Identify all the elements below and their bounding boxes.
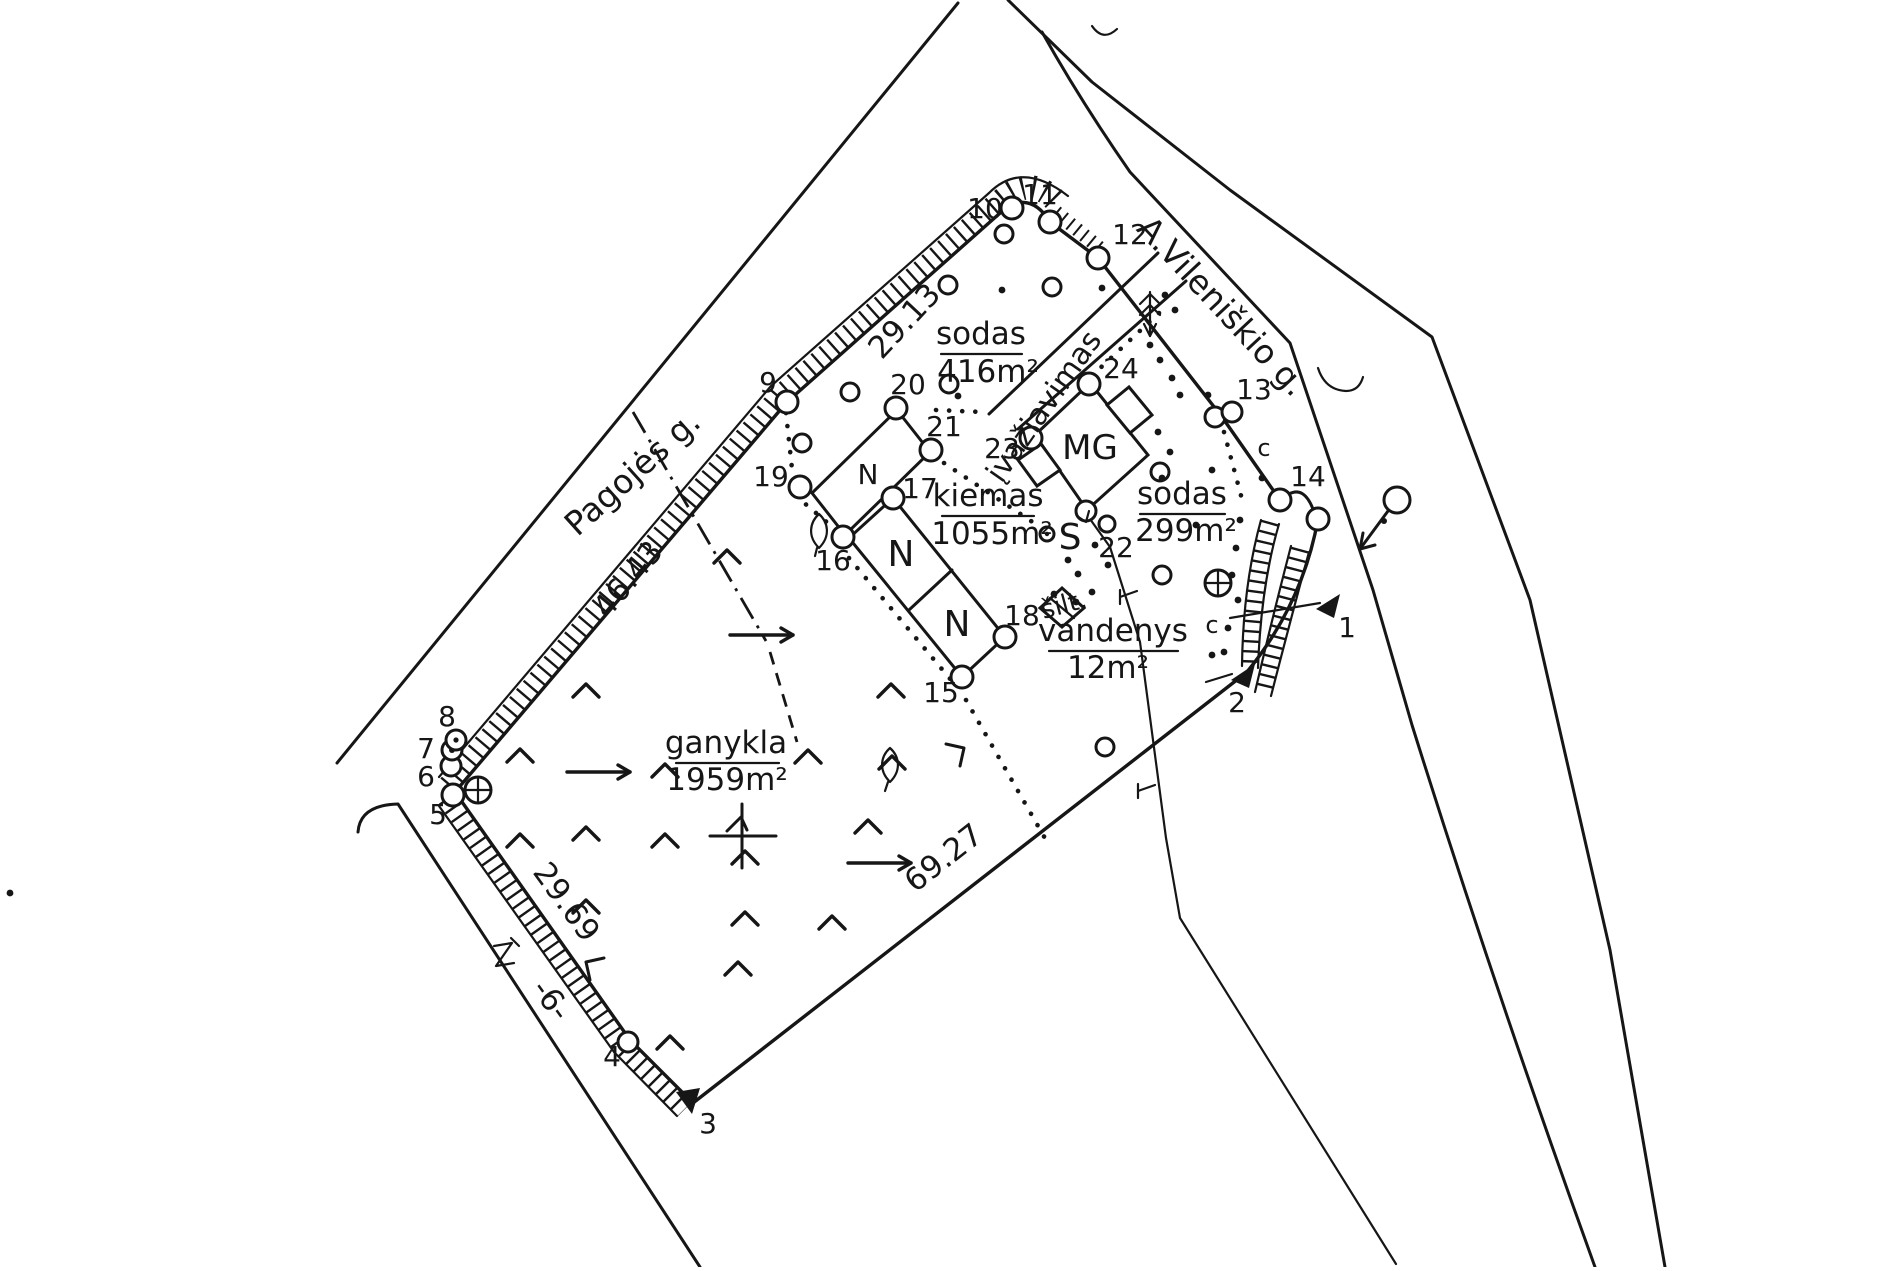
dot-mark [1099, 285, 1106, 292]
grass-symbol [732, 851, 758, 864]
road-junction-mark [1092, 26, 1117, 35]
svg-text:14: 14 [1290, 460, 1326, 493]
svg-text:vandenys: vandenys [1038, 613, 1188, 649]
culvert-mark [1318, 368, 1363, 391]
road-pagojes-outer-edge [337, 3, 958, 763]
well-label: S [1059, 517, 1082, 558]
measurement-sw: 29.69 [525, 856, 606, 949]
site-plan-container: N N N MG šilt. 1 2 3 4 5 [0, 0, 1900, 1271]
dot-mark [1167, 449, 1174, 456]
boundary-14-arc [1289, 492, 1313, 509]
pasture-arrow-icon [730, 628, 793, 642]
survey-point-22: 22 [1098, 516, 1134, 564]
grass-symbol [725, 962, 751, 975]
dot-mark [1237, 517, 1244, 524]
dot-mark [1259, 475, 1266, 482]
grass-symbol [573, 827, 599, 840]
c-mark: c [1257, 434, 1270, 462]
slope-band2-rail-right [1271, 552, 1309, 696]
dot-mark [1147, 342, 1154, 349]
survey-point-16: 16 [815, 526, 854, 577]
svg-text:11: 11 [1022, 178, 1058, 211]
survey-point-15: 15 [923, 666, 973, 709]
svg-text:1: 1 [1338, 611, 1356, 644]
dot-mark [955, 393, 962, 400]
grass-symbol [878, 684, 904, 697]
area-label-sodas-east: sodas 299m² [1135, 476, 1237, 549]
tree-icon [882, 748, 898, 791]
dot-mark [1073, 599, 1080, 606]
utility-cross-icon [465, 777, 491, 803]
building-mg-label: MG [1062, 428, 1118, 468]
dot-mark [1155, 429, 1162, 436]
area-label-ganykla: ganykla 1959m² [665, 725, 788, 798]
survey-point-14: 14 [1269, 460, 1329, 530]
svg-text:1055m²: 1055m² [931, 516, 1053, 552]
svg-text:15: 15 [923, 676, 959, 709]
rail-sw-fence [439, 806, 677, 1116]
svg-text:21: 21 [926, 410, 962, 443]
dot-mark [1177, 392, 1184, 399]
dot-mark [1172, 307, 1179, 314]
grass-symbol [714, 550, 740, 563]
svg-text:1959m²: 1959m² [666, 762, 788, 798]
dot-mark [1209, 467, 1216, 474]
dot-mark [1105, 562, 1112, 569]
building-n2-label: N [888, 534, 915, 575]
svg-text:5: 5 [429, 798, 447, 831]
survey-point-10: 10 [967, 192, 1023, 225]
svg-text:22: 22 [1098, 531, 1134, 564]
dot-mark [1169, 375, 1176, 382]
site-plan: N N N MG šilt. 1 2 3 4 5 [0, 0, 1900, 1267]
survey-point-21: 21 [920, 410, 962, 461]
dot-mark [1205, 392, 1212, 399]
dotted-15-se [966, 700, 1046, 840]
svg-text:18: 18 [1004, 599, 1040, 632]
pipe-tick-2 [1138, 784, 1155, 798]
survey-point-11: 11 [1022, 178, 1061, 233]
survey-point-4: 4 [603, 1032, 638, 1073]
svg-text:16: 16 [815, 544, 851, 577]
svg-text:299m²: 299m² [1135, 513, 1237, 549]
svg-text:8: 8 [438, 700, 456, 733]
svg-text:3: 3 [699, 1107, 717, 1140]
survey-point-18: 18 [994, 599, 1040, 648]
corner-tick [586, 958, 604, 980]
svg-text:ganykla: ganykla [665, 725, 787, 761]
survey-point-19: 19 [753, 460, 811, 498]
cable-marker-icon [494, 938, 519, 966]
svg-text:416m²: 416m² [937, 354, 1039, 390]
dot-mark [1162, 292, 1169, 299]
coordinate-cross-icon [710, 804, 776, 868]
road-code-label: -6- [524, 973, 578, 1028]
arrow-line-to-2 [1206, 674, 1232, 682]
measurement-se: 69.27 [898, 817, 990, 900]
survey-point-2: 2 [1228, 664, 1255, 719]
symbols: S [7, 225, 1410, 1049]
dot-mark [1092, 542, 1099, 549]
survey-point-13: 13 [1205, 373, 1272, 427]
dot-mark [1065, 557, 1072, 564]
svg-text:sodas: sodas [936, 316, 1026, 352]
svg-text:19: 19 [753, 460, 789, 493]
survey-point-9: 9 [759, 366, 798, 413]
survey-point-8: 8 [438, 700, 466, 750]
dot-mark [1225, 625, 1232, 632]
grass-symbol [507, 749, 533, 762]
area-label-sodas-north: sodas 416m² [936, 316, 1039, 390]
grass-symbol [507, 834, 533, 847]
dot-mark [1221, 649, 1228, 656]
survey-point-1: 1 [1316, 594, 1356, 644]
building-n1-label: N [858, 458, 879, 491]
dot-mark [1229, 572, 1236, 579]
survey-point-3: 3 [676, 1088, 717, 1140]
pipe-tick-1 [1120, 590, 1137, 604]
dot-mark [1089, 589, 1096, 596]
svg-text:7: 7 [417, 732, 435, 765]
svg-text:4: 4 [603, 1040, 621, 1073]
svg-text:20: 20 [890, 368, 926, 401]
utility-cross-icon [1205, 570, 1231, 596]
area-label-vandenys: vandenys 12m² [1038, 613, 1188, 686]
c-mark: c [1205, 611, 1218, 639]
dot-mark [1051, 591, 1058, 598]
measurement-w: 46.43 [586, 534, 671, 625]
dot-mark [1235, 597, 1242, 604]
grass-symbol [652, 834, 678, 847]
dot-mark [1075, 571, 1082, 578]
grass-symbol [855, 820, 881, 833]
pasture-arrow-icon [567, 765, 630, 779]
grass-symbol [573, 684, 599, 697]
svg-text:24: 24 [1103, 352, 1139, 385]
svg-text:sodas: sodas [1137, 476, 1227, 512]
dot-mark [1209, 652, 1216, 659]
dot-mark [999, 287, 1006, 294]
dot-mark [7, 890, 14, 897]
grass-symbol [795, 750, 821, 763]
svg-text:12m²: 12m² [1067, 650, 1149, 686]
grass-symbol [657, 1036, 683, 1049]
entrance-arrow-icon [1360, 487, 1410, 549]
area-label-kiemas: kiemas 1055m² [931, 478, 1053, 552]
grass-symbol [819, 916, 845, 929]
svg-text:10: 10 [967, 192, 1003, 225]
grass-symbol [732, 912, 758, 925]
svg-text:2: 2 [1228, 686, 1246, 719]
svg-text:9: 9 [759, 366, 777, 399]
dot-mark [1157, 357, 1164, 364]
building-n3-label: N [944, 604, 971, 645]
svg-text:kiemas: kiemas [933, 478, 1044, 514]
survey-point-20: 20 [885, 368, 926, 419]
corner-tick [946, 744, 964, 766]
